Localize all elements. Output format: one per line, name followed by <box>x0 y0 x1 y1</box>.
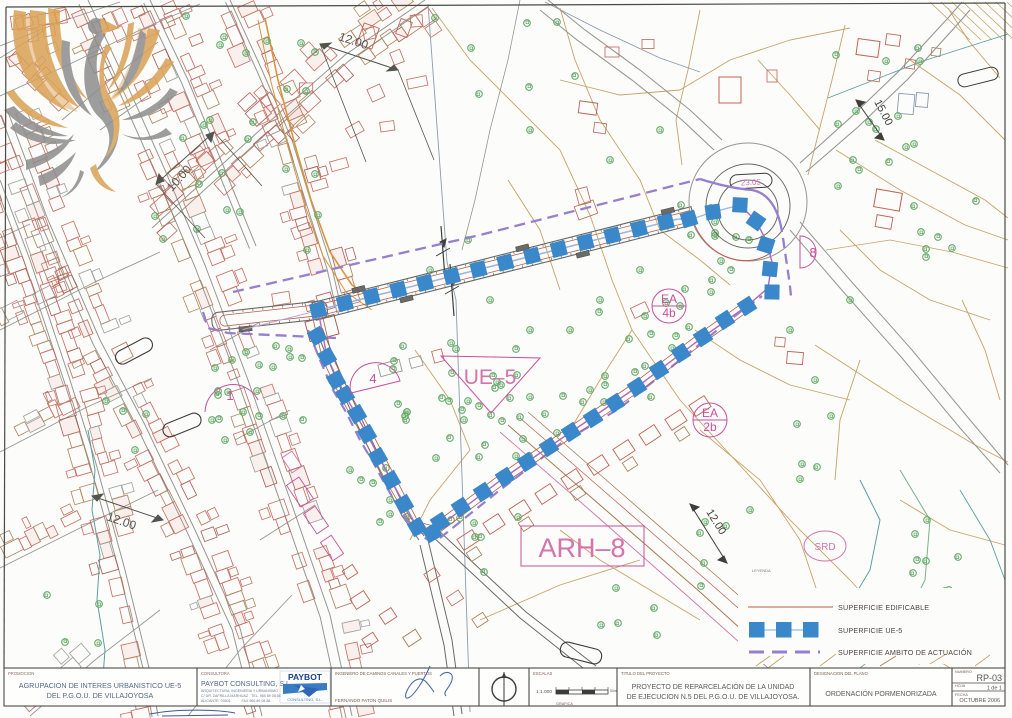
svg-text:EA: EA <box>661 292 677 306</box>
svg-text:PAYBOT: PAYBOT <box>288 672 323 682</box>
svg-text:NUMERO: NUMERO <box>955 670 972 674</box>
svg-text:ARH–8: ARH–8 <box>538 533 625 563</box>
svg-text:50m: 50m <box>610 689 617 693</box>
svg-text:GRAFICA: GRAFICA <box>556 702 573 706</box>
svg-text:2b: 2b <box>703 420 717 434</box>
svg-text:PROMOCION: PROMOCION <box>8 671 34 676</box>
svg-text:PAYBOT CONSULTING, S.L.: PAYBOT CONSULTING, S.L. <box>201 681 292 688</box>
svg-text:CONSULTING, S.L.: CONSULTING, S.L. <box>287 697 322 702</box>
svg-text:LEYENDA: LEYENDA <box>752 568 771 573</box>
svg-text:1: 1 <box>226 388 233 403</box>
svg-text:8: 8 <box>809 245 816 260</box>
svg-text:C/ DR. ZAFRILLA MARHUAZ TEL.: C/ DR. ZAFRILLA MARHUAZ TEL. 965 89 08 8… <box>201 694 281 698</box>
svg-text:SUPERFICIE AMBITO DE ACTUACIÓN: SUPERFICIE AMBITO DE ACTUACIÓN <box>838 648 972 657</box>
svg-text:SRD: SRD <box>814 542 835 553</box>
svg-text:ARQUITECTURA, INGENIERIA Y URB: ARQUITECTURA, INGENIERIA Y URBANISMO <box>201 689 278 693</box>
svg-text:INGENIERO DE CAMINOS CANALES Y: INGENIERO DE CAMINOS CANALES Y PUERTOS <box>335 671 432 676</box>
svg-text:FERNANDO PATON QUILIS: FERNANDO PATON QUILIS <box>335 698 392 703</box>
svg-text:OCTUBRE 2006: OCTUBRE 2006 <box>959 698 1000 704</box>
svg-text:4b: 4b <box>662 306 676 320</box>
svg-text:CONSULTORA: CONSULTORA <box>201 671 230 676</box>
svg-text:UE–5: UE–5 <box>464 366 517 389</box>
svg-text:TITULO DEL PROYECTO: TITULO DEL PROYECTO <box>621 671 670 676</box>
svg-text:EA: EA <box>702 406 718 420</box>
svg-text:PROYECTO DE REPARCELACIÓN DE L: PROYECTO DE REPARCELACIÓN DE LA UNIDAD <box>632 682 795 691</box>
svg-text:RP-03: RP-03 <box>976 673 1002 683</box>
svg-text:SUPERFICIE EDIFICABLE: SUPERFICIE EDIFICABLE <box>838 603 929 612</box>
svg-text:ESCALAS: ESCALAS <box>533 671 553 676</box>
svg-text:ALICANTE 03501 FAX: ALICANTE 03501 FAX 965 89 08 88 <box>201 699 270 703</box>
svg-text:FECHA: FECHA <box>955 693 968 697</box>
svg-text:1 de 1: 1 de 1 <box>987 686 1002 692</box>
svg-text:23.05: 23.05 <box>741 177 762 187</box>
svg-text:DE EJECUCION N.5 DEL P.G.O.U.: DE EJECUCION N.5 DEL P.G.O.U. DE VILLAJO… <box>627 694 800 701</box>
svg-text:ORDENACIÓN PORMENORIZADA: ORDENACIÓN PORMENORIZADA <box>825 689 937 698</box>
svg-text:DESIGNACION DEL PLANO: DESIGNACION DEL PLANO <box>814 671 869 676</box>
svg-text:SUPERFICIE UE-5: SUPERFICIE UE-5 <box>838 626 903 635</box>
svg-text:1:1.000: 1:1.000 <box>536 689 552 695</box>
svg-text:DEL P.G.O.U. DE VILLAJOYOSA: DEL P.G.O.U. DE VILLAJOYOSA <box>47 691 154 700</box>
svg-text:4: 4 <box>369 371 376 386</box>
svg-text:HOJA: HOJA <box>955 684 966 688</box>
svg-text:AGRUPACION DE INTERES URBANIST: AGRUPACION DE INTERES URBANISTICO UE-5 <box>19 681 181 690</box>
